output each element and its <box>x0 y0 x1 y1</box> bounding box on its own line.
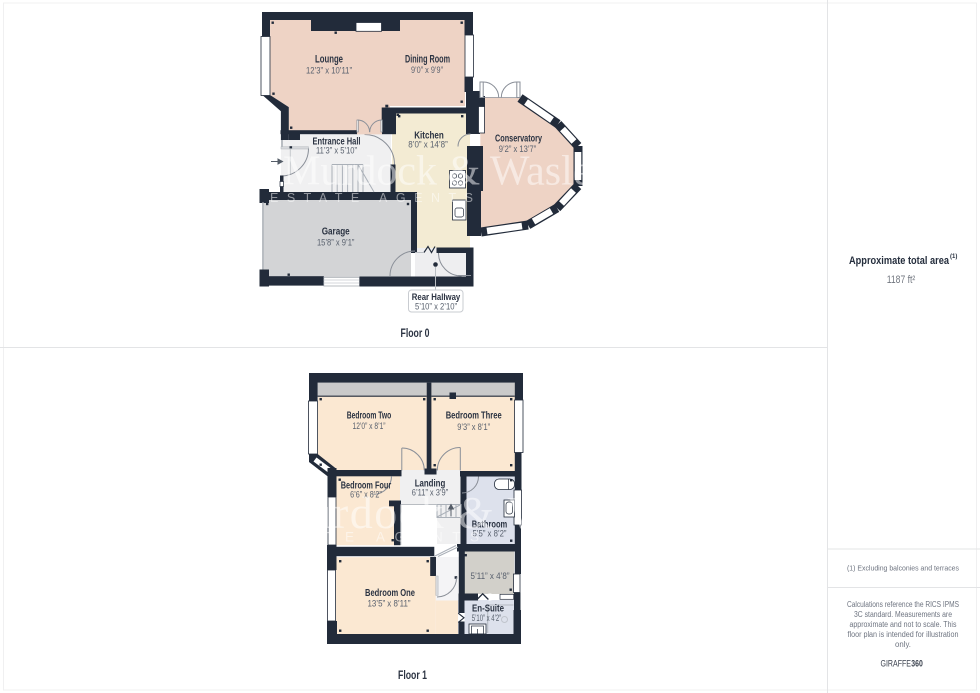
svg-text:(1) Excluding balconies and te: (1) Excluding balconies and terraces <box>847 564 959 573</box>
svg-text:13’5” x 8’11”: 13’5” x 8’11” <box>368 599 411 610</box>
svg-text:9’3” x 8’1”: 9’3” x 8’1” <box>457 422 490 433</box>
svg-text:Floor 1: Floor 1 <box>398 670 427 682</box>
svg-text:Bedroom One: Bedroom One <box>365 587 415 599</box>
svg-text:Bedroom Two: Bedroom Two <box>347 410 392 422</box>
svg-text:5’10” x 4’2”: 5’10” x 4’2” <box>472 613 501 624</box>
svg-text:Conservatory: Conservatory <box>495 133 542 145</box>
svg-text:360: 360 <box>911 659 923 669</box>
svg-text:Bedroom Three: Bedroom Three <box>446 410 502 422</box>
svg-text:12’3” x 10’11”: 12’3” x 10’11” <box>306 66 352 77</box>
svg-text:Calculations reference the RIC: Calculations reference the RICS IPMS <box>847 600 959 609</box>
svg-text:5’10” x 2’10”: 5’10” x 2’10” <box>415 302 457 312</box>
svg-text:approximate and not to scale.: approximate and not to scale. This <box>850 620 957 629</box>
svg-text:15’8” x 9’1”: 15’8” x 9’1” <box>317 238 355 249</box>
svg-text:ESTATE AGENTS: ESTATE AGENTS <box>256 530 489 545</box>
svg-text:Garage: Garage <box>322 226 350 238</box>
svg-text:Approximate total area: Approximate total area <box>849 255 950 267</box>
svg-text:Floor 0: Floor 0 <box>401 328 430 340</box>
svg-text:5’11” x 4’8”: 5’11” x 4’8” <box>471 571 510 582</box>
svg-text:Murdock & Wasley: Murdock & Wasley <box>283 149 612 195</box>
svg-text:9’0” x 9’9”: 9’0” x 9’9” <box>411 65 443 76</box>
svg-text:3C standard. Measurements are: 3C standard. Measurements are <box>854 610 952 619</box>
svg-text:12’0” x 8’1”: 12’0” x 8’1” <box>353 421 386 432</box>
svg-text:GIRAFFE: GIRAFFE <box>881 659 912 669</box>
svg-text:floor plan is intended for ill: floor plan is intended for illustration <box>848 630 959 639</box>
svg-text:Dining Room: Dining Room <box>405 54 450 66</box>
svg-text:(1): (1) <box>950 254 957 260</box>
svg-text:ESTATE AGENTS: ESTATE AGENTS <box>270 191 481 205</box>
svg-text:only.: only. <box>895 640 911 649</box>
svg-text:Lounge: Lounge <box>315 54 343 66</box>
svg-text:1187 ft²: 1187 ft² <box>887 274 916 286</box>
